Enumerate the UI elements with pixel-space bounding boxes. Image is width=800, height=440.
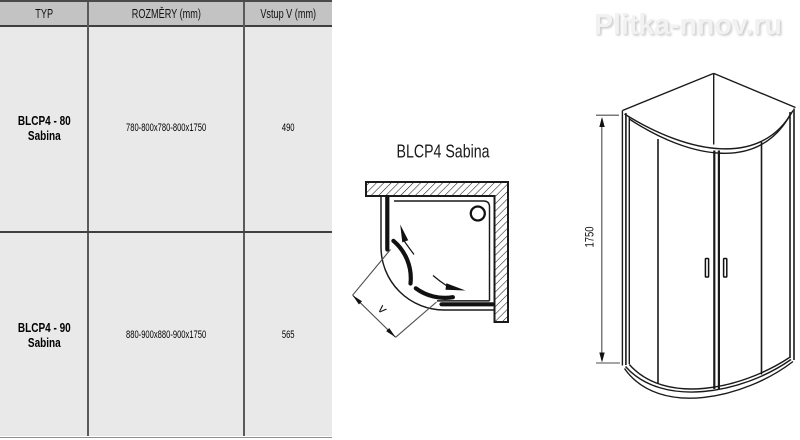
svg-text:1750: 1750: [585, 227, 597, 248]
svg-text:BLCP4 Sabina: BLCP4 Sabina: [397, 142, 491, 162]
svg-text:v: v: [375, 301, 391, 316]
